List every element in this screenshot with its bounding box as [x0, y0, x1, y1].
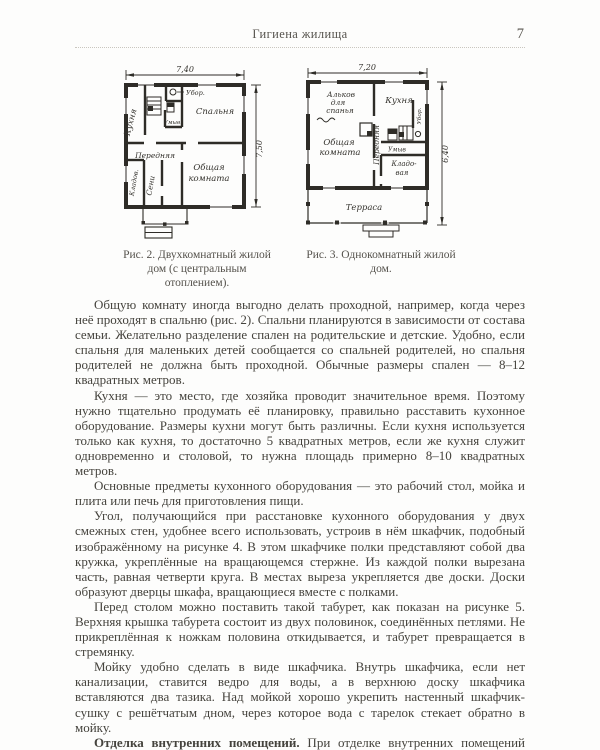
staircase	[147, 97, 161, 115]
dimension-height: 7,50	[251, 85, 264, 207]
room-label-common-1: Общая	[323, 137, 355, 148]
room-label-common-2: комната	[188, 174, 229, 184]
paragraph-kitchen: Кухня — это место, где хозяйка проводит …	[75, 388, 525, 479]
porch	[142, 207, 189, 238]
dim-height-label: 6,40	[441, 145, 450, 163]
room-label-common-2: комната	[319, 148, 360, 158]
dimension-width: 7,40	[126, 65, 244, 80]
dim-width-label: 7,40	[176, 65, 194, 74]
running-head: Гигиена жилища	[75, 27, 525, 42]
room-label-hallway: Передняя	[134, 151, 175, 160]
caption-fig2: Рис. 2. Двухкомнатный жилой дом (с центр…	[121, 248, 273, 290]
body-text: Общую комнату иногда выгодно делать прох…	[75, 297, 525, 750]
paragraph-sink: Мойку удобно сделать в виде шкафчика. Вн…	[75, 659, 525, 734]
room-label-kitchen: Кухня	[384, 96, 413, 106]
paragraph-common-room: Общую комнату иногда выгодно делать прох…	[75, 297, 525, 388]
room-label-common-1: Общая	[193, 162, 225, 173]
room-label-toilet: Убор.	[416, 107, 423, 124]
book-page: Гигиена жилища 7 7,40 7,50	[0, 0, 600, 750]
dimension-width: 7,20	[308, 63, 427, 78]
bed-wavy-mark	[317, 118, 335, 122]
dim-height-label: 7,50	[255, 140, 264, 158]
staircase	[399, 126, 413, 140]
paragraph-kitchen-equipment: Основные предметы кухонного оборудования…	[75, 478, 525, 508]
room-label-pantry: Кладов.	[128, 169, 141, 198]
room-label-toilet: Убор.	[186, 89, 205, 97]
floor-plan-one-room-house: 7,20 6,40	[293, 58, 463, 253]
table	[360, 123, 372, 136]
room-label-washstand: Умыв	[388, 147, 406, 154]
room-label-washstand: Умыв.	[164, 120, 182, 126]
interior-walls	[126, 85, 244, 207]
caption-fig3: Рис. 3. Однокомнатный жилой дом.	[297, 248, 465, 276]
room-label-bedroom: Спальня	[196, 107, 235, 117]
header-divider	[75, 47, 525, 48]
dimension-height: 6,40	[437, 82, 450, 225]
floor-plan-two-room-house: 7,40 7,50	[98, 58, 288, 248]
paragraph-stool: Перед столом можно поставить такой табур…	[75, 599, 525, 659]
paragraph-lead-bold: Отделка внутренних помещений.	[94, 735, 300, 750]
paragraph-interior-finish: Отделка внутренних помещений. При отделк…	[75, 735, 525, 750]
room-label-alcove-3: спанья	[326, 106, 354, 115]
room-label-terrace: Терраса	[346, 203, 382, 213]
room-label-hallway: Передняя	[372, 125, 381, 166]
room-label-pantry-2: вая	[396, 169, 409, 177]
page-number: 7	[517, 26, 524, 43]
windows	[123, 82, 247, 210]
room-label-pantry-1: Кладо-	[390, 160, 417, 168]
dim-width-label: 7,20	[358, 63, 376, 72]
paragraph-corner-cabinet: Угол, получающийся при расстановке кухон…	[75, 508, 525, 599]
wash-fixtures	[388, 129, 421, 140]
room-label-vestibule: Сени	[144, 175, 156, 196]
